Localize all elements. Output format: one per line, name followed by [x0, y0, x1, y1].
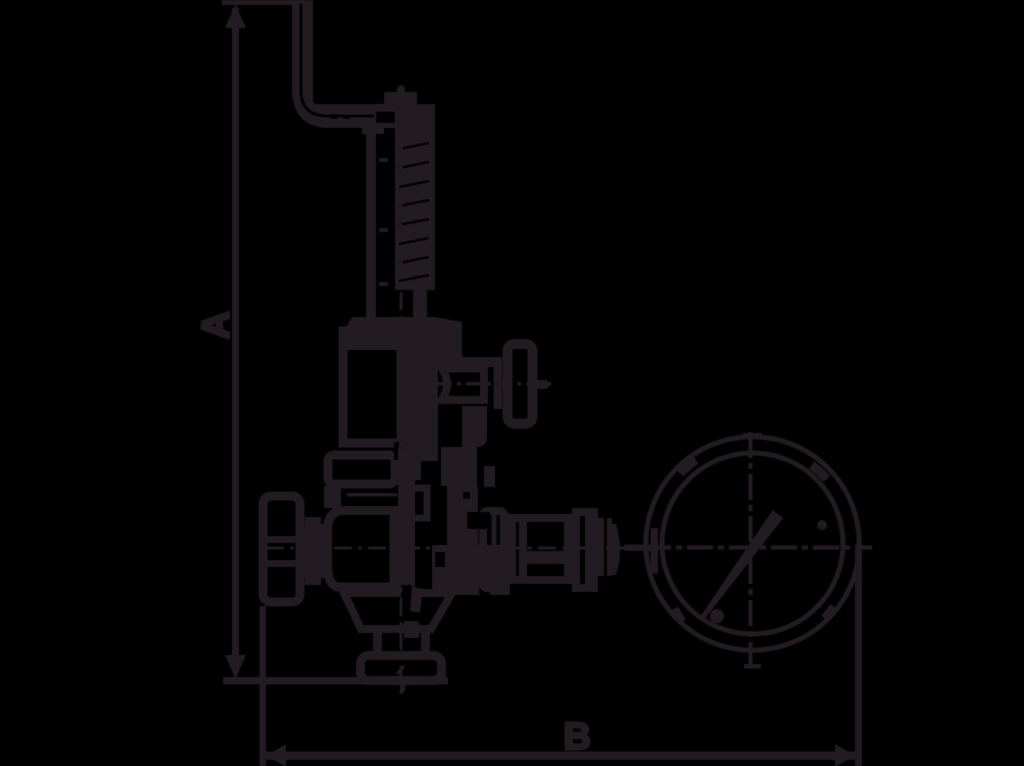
svg-text:A: A — [196, 312, 238, 339]
svg-text:B: B — [564, 716, 591, 758]
